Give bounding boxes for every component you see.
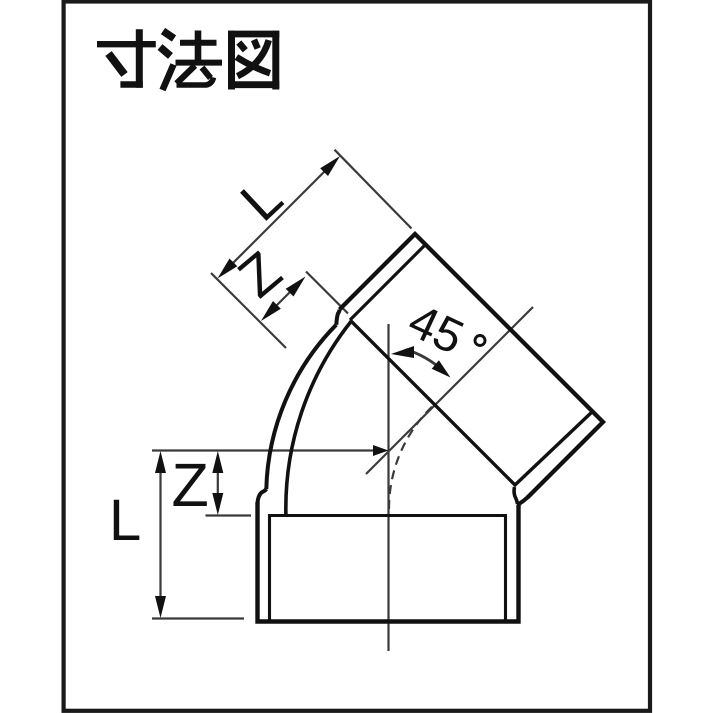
svg-text:Z: Z: [172, 451, 209, 519]
svg-text:L: L: [109, 488, 141, 553]
svg-text:L: L: [228, 165, 294, 232]
